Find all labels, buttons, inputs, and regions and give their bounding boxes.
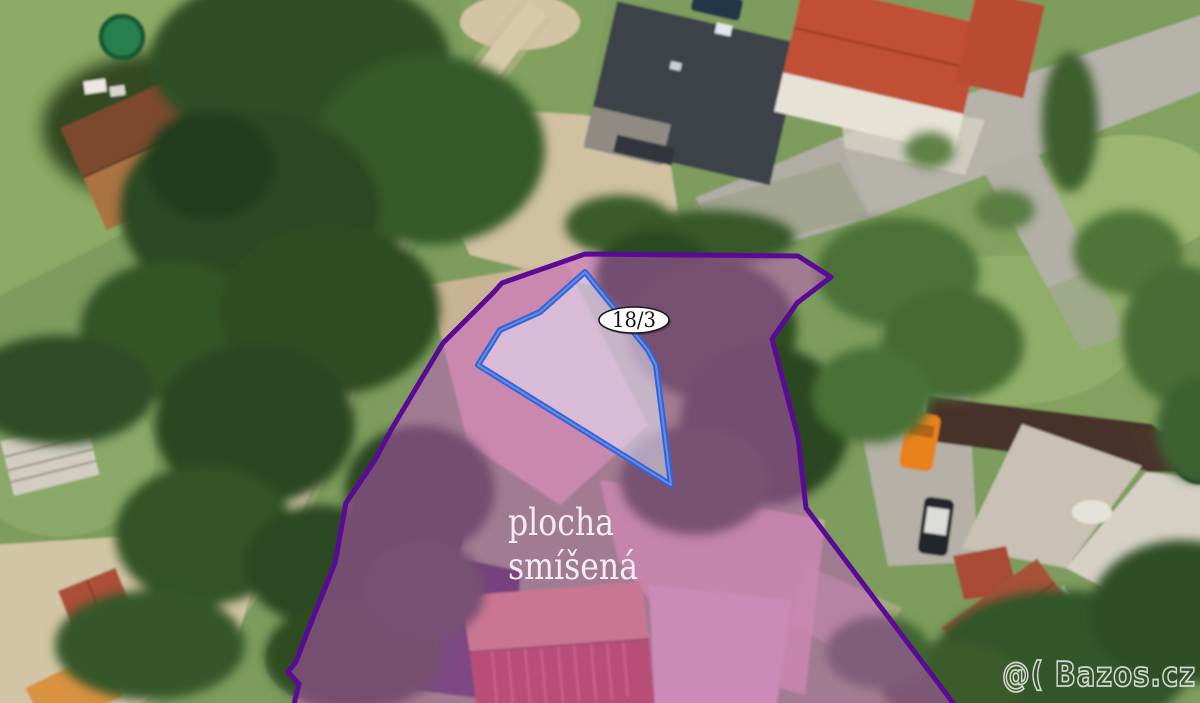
garden-pool	[101, 16, 143, 58]
zone-label-line2: smíšená	[508, 545, 638, 588]
parcel-number-label: 18/3	[612, 308, 656, 332]
zone-label-line1: plocha	[508, 501, 614, 544]
satellite-map: 18/3 plocha smíšená @( Bazos.cz	[0, 0, 1200, 703]
aerial-map-screenshot: 18/3 plocha smíšená @( Bazos.cz	[0, 0, 1200, 703]
watermark: @( Bazos.cz	[1002, 655, 1196, 695]
